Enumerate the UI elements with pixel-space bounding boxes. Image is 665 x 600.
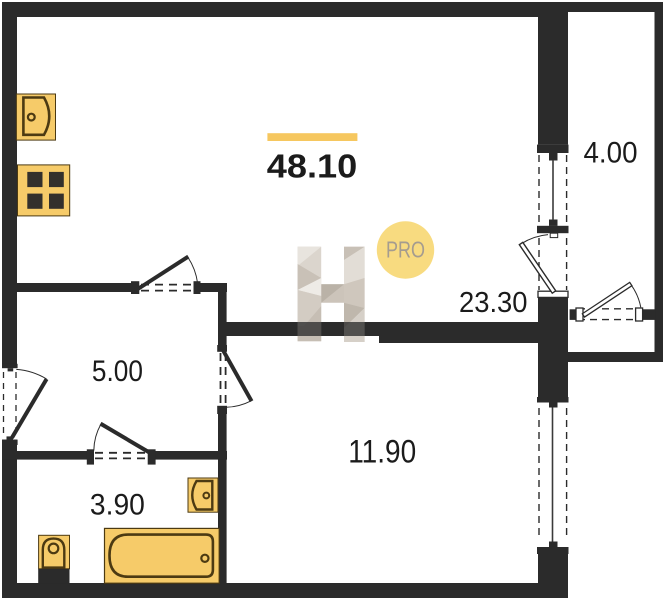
svg-text:4.00: 4.00 xyxy=(584,136,638,169)
svg-text:5.00: 5.00 xyxy=(92,355,143,388)
svg-text:11.90: 11.90 xyxy=(348,433,416,469)
svg-text:3.90: 3.90 xyxy=(90,488,145,521)
svg-text:PRO: PRO xyxy=(386,236,425,262)
svg-text:23.30: 23.30 xyxy=(459,287,528,319)
svg-text:48.10: 48.10 xyxy=(267,148,358,185)
